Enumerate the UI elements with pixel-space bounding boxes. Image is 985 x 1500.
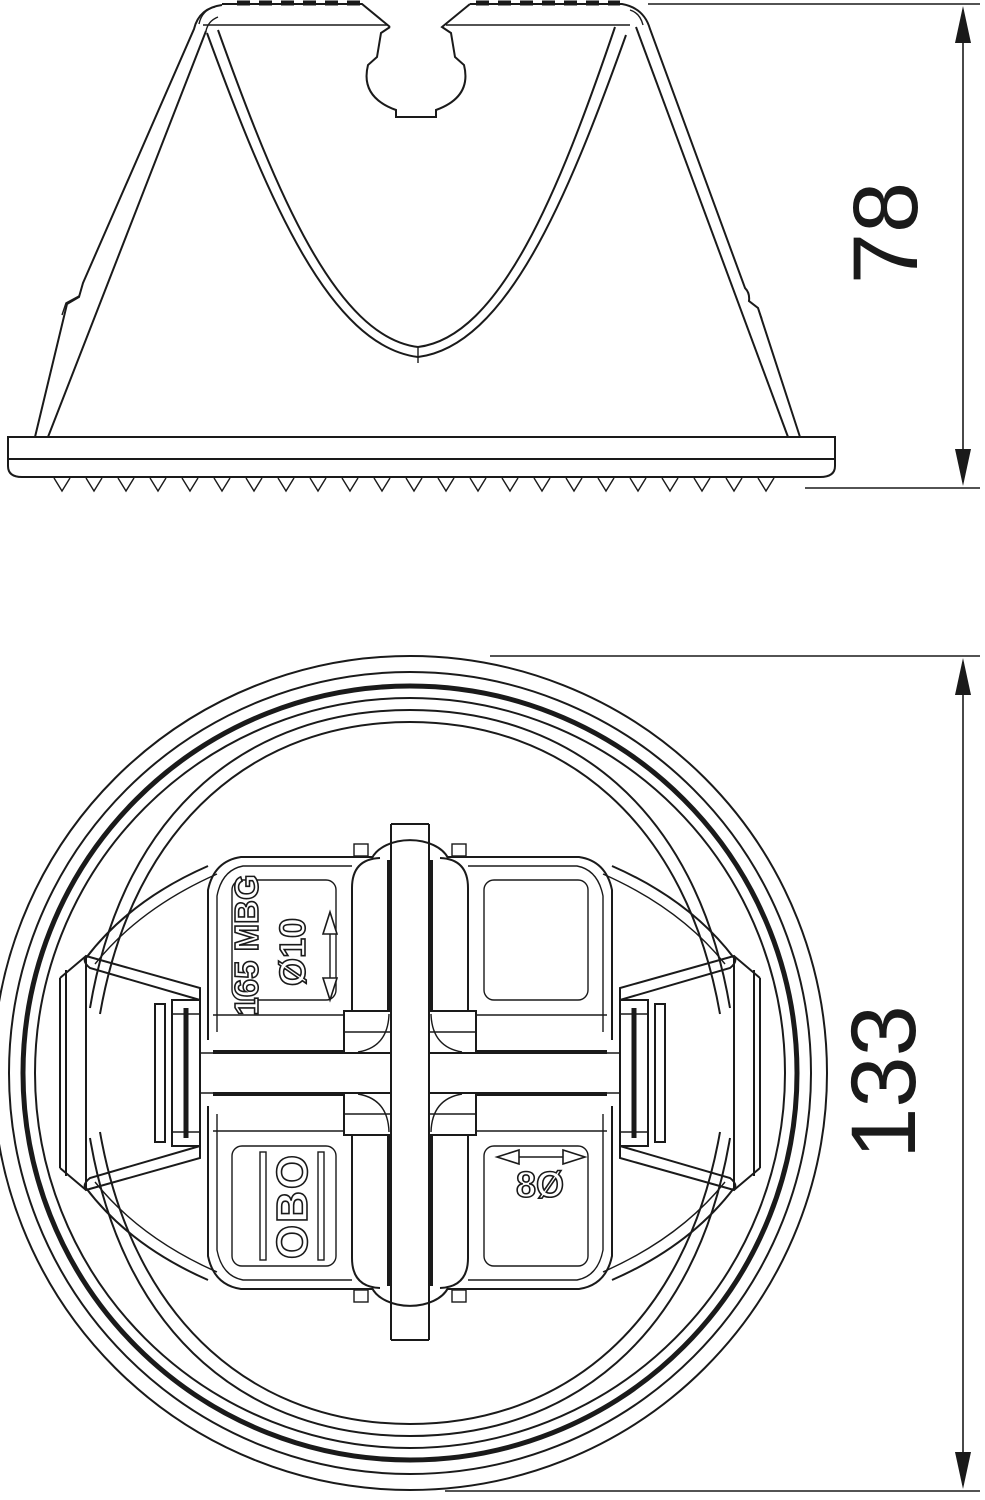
top-conductor-dia-label: Ø10 — [272, 918, 313, 986]
product-type-label: 165 MBG — [228, 874, 265, 1015]
side-u-curve-outer — [207, 33, 626, 357]
top-tab-right — [452, 844, 466, 856]
bottom-dome-bump — [372, 1288, 448, 1306]
technical-drawing-page: 78 — [0, 0, 985, 1500]
brand-logo: OBO — [260, 1152, 324, 1260]
top-tab-left — [354, 844, 368, 856]
side-base-plate — [8, 437, 835, 477]
dia10-arrow-head-up — [323, 912, 337, 934]
brand-logo-bar-left — [260, 1152, 266, 1260]
vert-wall-left-bottom — [352, 1135, 380, 1288]
dimension-arrow-down-icon — [955, 449, 971, 486]
dimension-arrow-up-icon — [955, 658, 971, 695]
dome-arch-top-inner — [100, 722, 720, 1014]
brand-logo-bar-right — [318, 1152, 324, 1260]
right-wing-bottom-flap — [620, 1146, 735, 1190]
bottom-tab-left — [354, 1290, 368, 1302]
dia8-arrow-head-left — [497, 1150, 519, 1164]
panel-border-top-right — [484, 880, 588, 1000]
height-dimension-value: 78 — [835, 182, 937, 284]
right-wing — [620, 956, 760, 1190]
right-wing-rail-outer — [655, 1004, 665, 1142]
block-inner-top-right — [468, 866, 603, 1032]
dia8-arrow-head-right — [563, 1150, 585, 1164]
technical-drawing-canvas: 78 — [0, 0, 985, 1500]
diameter-dimension-value: 133 — [833, 1005, 935, 1159]
dimension-arrow-down-icon — [955, 1452, 971, 1489]
brand-logo-text: OBO — [268, 1153, 317, 1259]
outer-ring-3 — [35, 698, 785, 1448]
diameter-dimension: 133 — [445, 656, 980, 1491]
left-wing — [60, 956, 200, 1190]
right-wing-top-flap — [620, 956, 735, 1000]
outer-ring-2 — [9, 672, 811, 1474]
dia8-arrow-icon — [497, 1150, 585, 1164]
side-right-inner-edge — [636, 27, 788, 437]
bottom-view: 165 MBG Ø10 OBO 8Ø — [0, 656, 827, 1490]
vert-wall-right-bottom — [440, 1135, 468, 1288]
height-dimension: 78 — [648, 4, 980, 488]
vert-wall-right-top — [440, 858, 468, 1011]
bottom-tab-right — [452, 1290, 466, 1302]
horiz-slot-thick-edges — [213, 1052, 607, 1094]
top-dome-bump — [372, 840, 448, 858]
left-wing-outer-wall — [60, 956, 86, 1190]
conductor-slot-vertical — [391, 824, 429, 1340]
dia10-arrow-icon — [323, 912, 337, 1000]
left-wing-bottom-flap — [85, 1146, 200, 1190]
vert-slot-thick-edges — [389, 860, 431, 1286]
side-right-corner-fold — [630, 10, 762, 319]
left-wing-rail-outer — [155, 1004, 165, 1142]
bottom-conductor-dia-label: 8Ø — [516, 1164, 564, 1205]
side-left-corner-fold — [199, 7, 218, 31]
side-top-edge-right — [470, 4, 800, 437]
side-base-teeth — [54, 478, 774, 491]
vert-wall-left-top — [352, 858, 380, 1011]
side-top-edge-left — [222, 4, 390, 27]
outer-ring-1 — [0, 656, 827, 1490]
right-wing-outer-wall — [734, 956, 760, 1190]
side-left-outer-edge — [35, 5, 222, 437]
dimension-arrow-up-icon — [955, 6, 971, 43]
engraved-markings: 165 MBG Ø10 OBO 8Ø — [228, 874, 585, 1260]
outer-ring-thick — [23, 686, 797, 1460]
dome-arch-bottom-inner — [100, 1132, 720, 1424]
horiz-slot-extensions — [200, 1053, 620, 1093]
horiz-band-lines — [213, 1015, 607, 1131]
side-u-curve-inner — [218, 27, 615, 347]
side-view — [8, 3, 835, 491]
left-wing-top-flap — [85, 956, 200, 1000]
dia10-arrow-head-down — [323, 978, 337, 1000]
side-left-inner-edge — [48, 31, 206, 437]
corner-block-details — [344, 1014, 476, 1132]
